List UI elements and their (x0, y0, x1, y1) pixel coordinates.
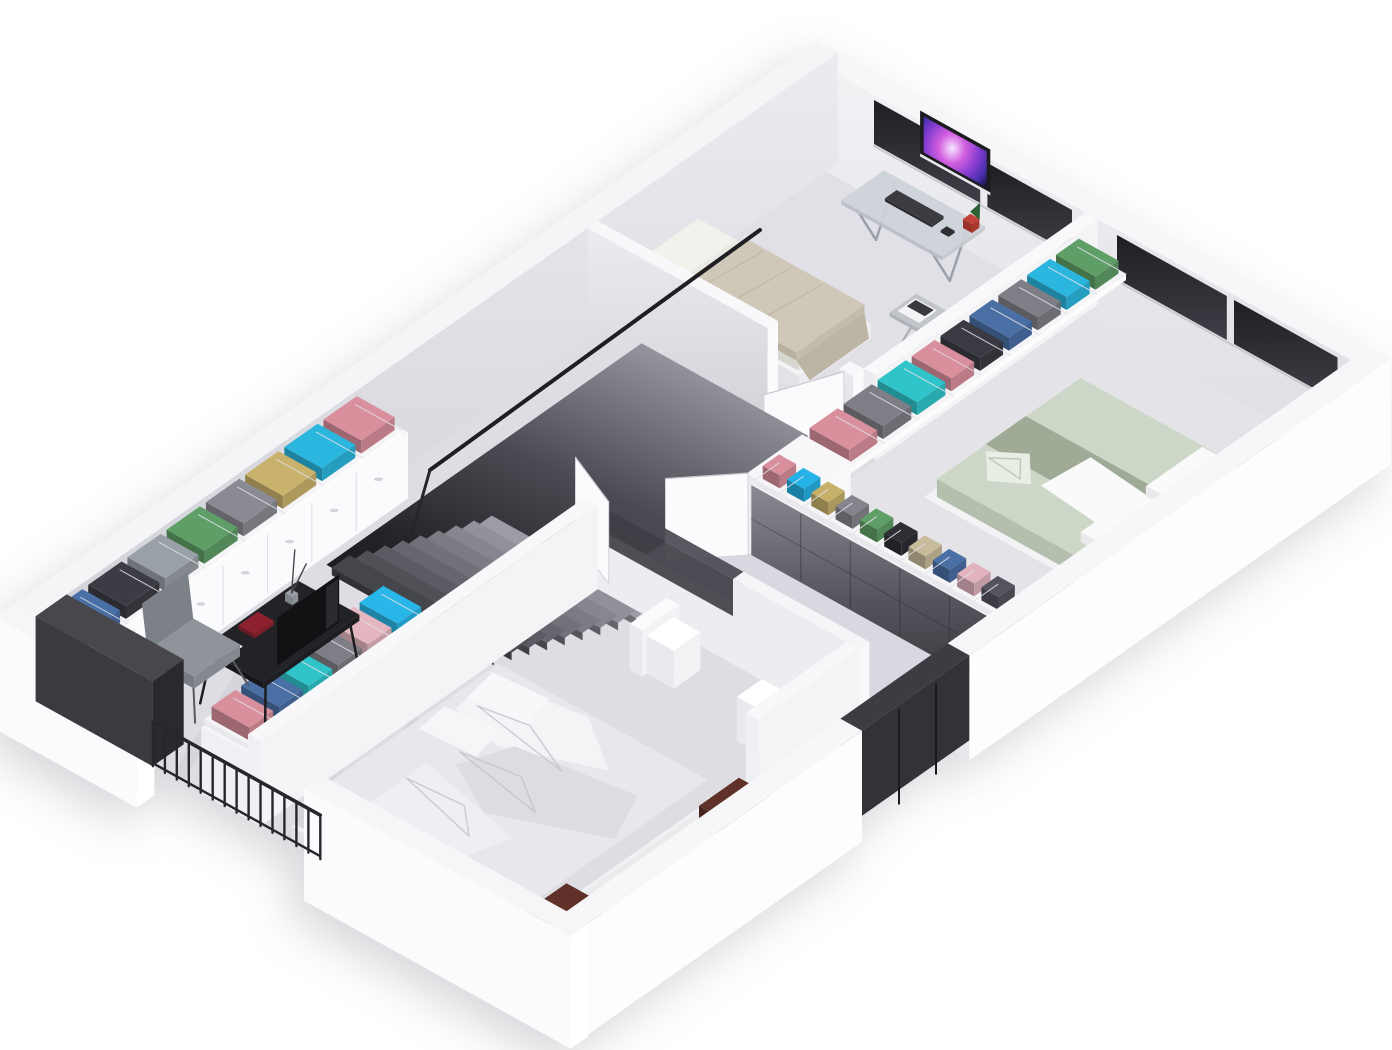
floorplan-3d-canvas: 3D isometric floor plan render of an upp… (0, 0, 1392, 1050)
floorplan-render-page: 3D isometric floor plan render of an upp… (0, 0, 1392, 1050)
